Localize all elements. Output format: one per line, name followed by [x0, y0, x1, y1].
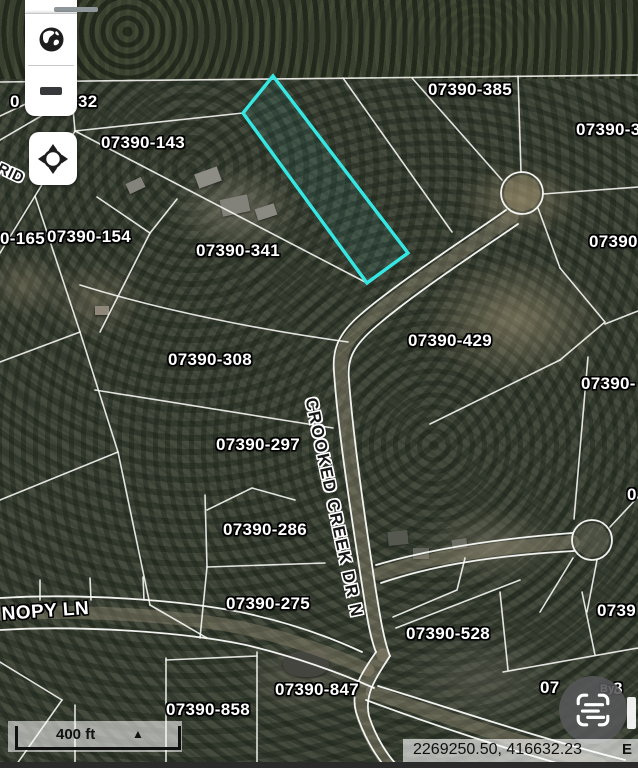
parcel-label: 07390-858: [166, 700, 250, 720]
scale-toggle[interactable]: ▲: [132, 727, 144, 741]
parcel-label: 07390-154: [47, 227, 131, 247]
toolbar-clipped-glyph: [54, 7, 98, 12]
scale-bar: 400 ft ▲: [8, 721, 182, 752]
parcel-label: 07390-308: [168, 350, 252, 370]
scale-bracket: [15, 726, 181, 750]
crosshair-icon: [37, 143, 69, 175]
parcel-label: 0739: [597, 601, 636, 621]
parcel-label: 07390-297: [216, 435, 300, 455]
parcel-label: 07390-429: [408, 331, 492, 351]
minus-icon: [40, 87, 62, 95]
scan-text-icon: [574, 691, 612, 729]
parcel-label: 07: [540, 678, 560, 698]
parcel-label: 32: [78, 92, 98, 112]
map-toolbar: [25, 13, 77, 116]
parcel-label: 07390: [589, 232, 638, 252]
parcel-label: 07390-143: [101, 133, 185, 153]
parcel-label: 07390-385: [428, 80, 512, 100]
parcel-label: 07390-: [581, 374, 636, 394]
coordinate-bar: 2269250.50, 416632.23 E: [403, 739, 638, 763]
parcel-label: 07390-528: [406, 624, 490, 644]
parcel-label: 07390-847: [275, 680, 359, 700]
toolbar-clipped-button[interactable]: [25, 0, 77, 13]
zoom-out-button[interactable]: [25, 66, 77, 116]
parcel-label: 07390-275: [226, 594, 310, 614]
map-viewer: 07390-38507390-307390-1430320-16507390-1…: [0, 0, 638, 768]
watermark-fragment: [627, 697, 636, 729]
scan-text-button[interactable]: [559, 676, 627, 744]
parcel-label: 0-165: [0, 229, 45, 249]
parcel-label: 07390-286: [223, 520, 307, 540]
bottom-edge: [0, 762, 638, 768]
parcel-lines-overlay: [0, 0, 638, 768]
coordinate-readout: 2269250.50, 416632.23: [413, 741, 582, 759]
parcel-label: 07390-3: [576, 120, 638, 140]
globe-icon: [38, 26, 65, 53]
parcel-label: 0: [627, 485, 637, 505]
scale-label: 400 ft: [56, 726, 95, 743]
locate-button[interactable]: [29, 132, 77, 185]
parcel-label: 0: [10, 92, 20, 112]
parcel-label: 07390-341: [196, 241, 280, 261]
edge-glyph: E: [622, 741, 632, 758]
basemap-button[interactable]: [25, 14, 77, 64]
